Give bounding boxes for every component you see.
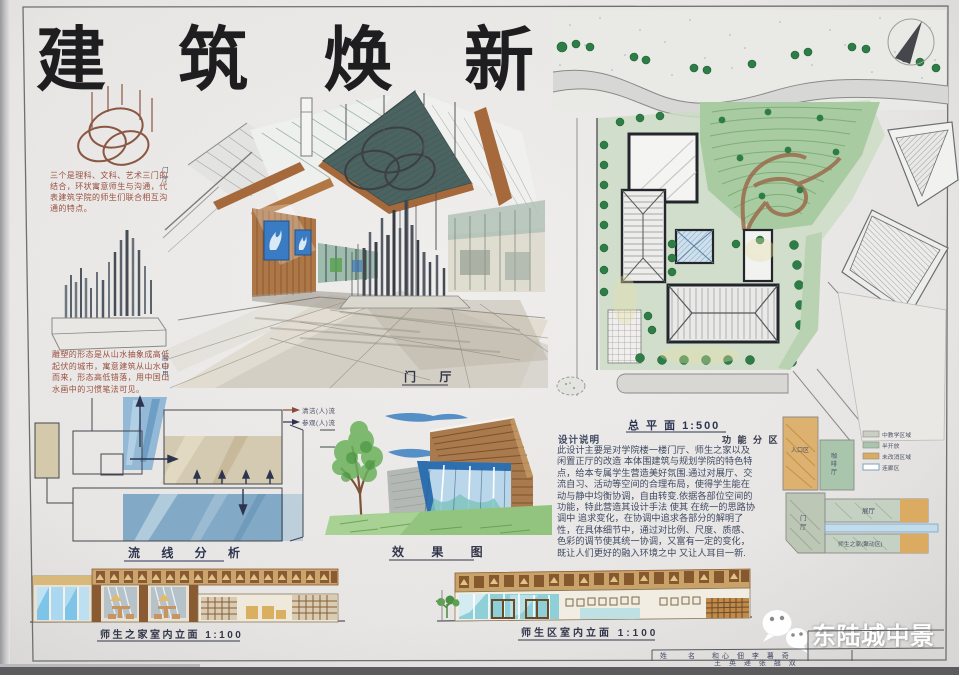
- svg-text:东陆城中景: 东陆城中景: [812, 622, 935, 650]
- svg-text:流 线 分 析: 流 线 分 析: [128, 545, 249, 560]
- svg-text:名: 名: [688, 651, 698, 660]
- svg-text:连廊区: 连廊区: [882, 464, 900, 472]
- svg-text:姓: 姓: [660, 651, 670, 660]
- svg-text:王 英 递 张 翘 双: 王 英 递 张 翘 双: [714, 658, 799, 667]
- svg-text:门: 门: [800, 513, 807, 522]
- svg-text:和心 佃 李 薯 奇: 和心 佃 李 薯 奇: [712, 651, 792, 660]
- svg-text:展厅: 展厅: [862, 507, 876, 515]
- svg-text:啡: 啡: [831, 460, 837, 468]
- svg-text:师生之家(聚动区): 师生之家(聚动区): [838, 540, 883, 548]
- svg-text:未改消区域: 未改消区域: [882, 453, 911, 461]
- svg-text:师生区室内立面 1:100: 师生区室内立面 1:100: [521, 626, 658, 639]
- svg-text:半开放: 半开放: [882, 442, 900, 450]
- svg-text:总 平 面 1:500: 总 平 面 1:500: [628, 418, 720, 432]
- svg-text:入口区: 入口区: [791, 447, 809, 454]
- svg-text:师生之家室内立面 1:100: 师生之家室内立面 1:100: [100, 628, 243, 641]
- svg-text:厅: 厅: [831, 469, 837, 476]
- svg-text:咖: 咖: [831, 452, 837, 460]
- svg-text:功 能 分 区: 功 能 分 区: [722, 434, 780, 445]
- svg-text:参观(人)流: 参观(人)流: [302, 418, 335, 427]
- svg-text:清洁(人)流: 清洁(人)流: [302, 406, 335, 415]
- svg-text:效 果 图: 效 果 图: [392, 544, 495, 559]
- svg-text:中教学区域: 中教学区域: [882, 431, 911, 439]
- svg-text:厅: 厅: [800, 523, 807, 531]
- svg-text:门 厅: 门 厅: [404, 369, 461, 384]
